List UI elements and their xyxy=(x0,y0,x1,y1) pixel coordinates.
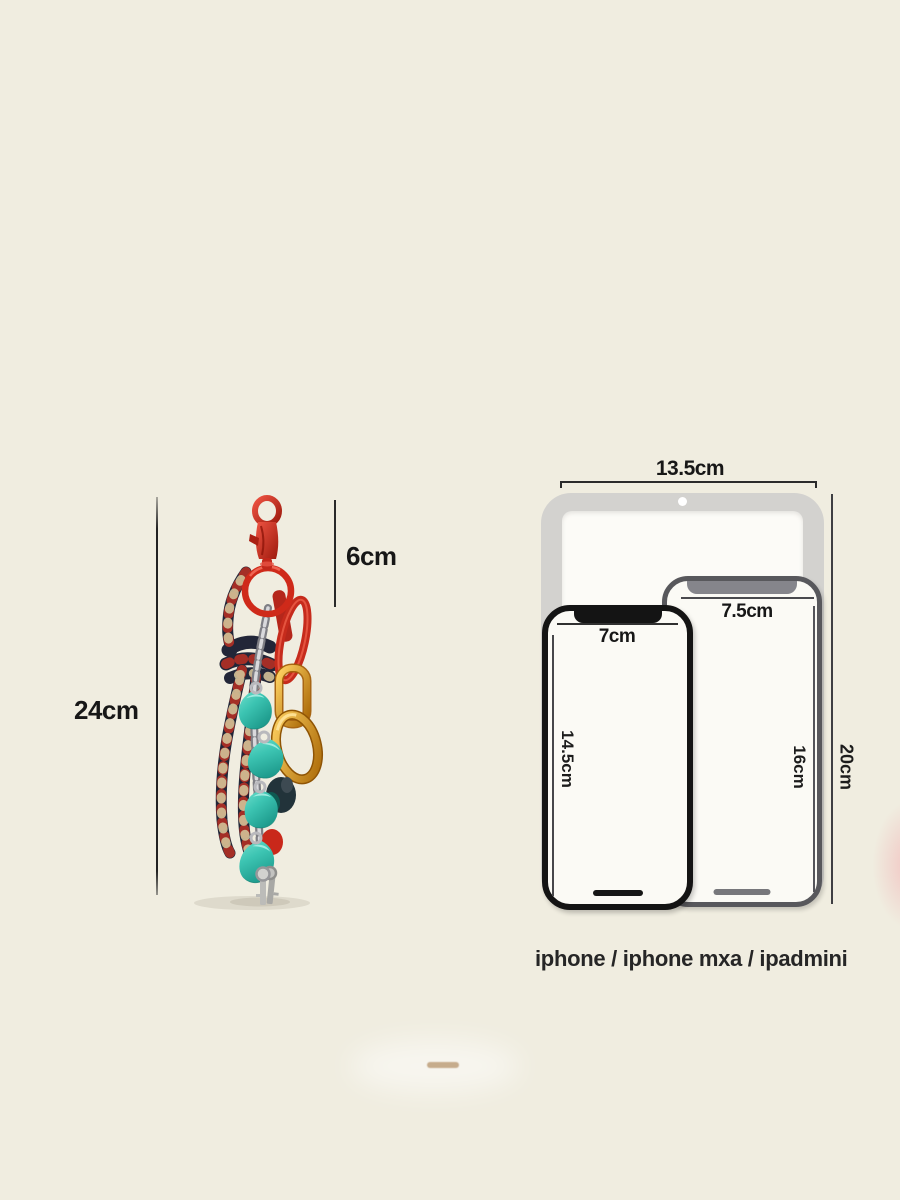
iphone-mxa-home-indicator xyxy=(714,889,771,895)
iphone-height-line xyxy=(552,635,554,896)
iphone-mxa-height-line xyxy=(813,606,815,892)
iphone-mxa-height-label: 16cm xyxy=(789,745,809,788)
iphone-mxa-width-label: 7.5cm xyxy=(721,601,772,623)
ipad-width-label: 13.5cm xyxy=(656,457,724,481)
product-size-diagram: 24cm 6cm xyxy=(0,0,900,1200)
height-dimension-label-24cm: 24cm xyxy=(74,695,139,726)
camera-dot-icon xyxy=(678,497,687,506)
device-comparison-caption: iphone / iphone mxa / ipadmini xyxy=(535,946,847,972)
iphone-height-label: 14.5cm xyxy=(557,730,577,788)
lobster-clasp xyxy=(249,498,279,570)
iphone-mxa-notch-icon xyxy=(687,581,797,594)
iphone-mxa-width-line xyxy=(681,597,814,599)
ipad-width-line xyxy=(560,481,817,483)
ipad-height-label: 20cm xyxy=(836,744,857,790)
iphone-notch-icon xyxy=(574,611,662,623)
pink-edge-artifact xyxy=(872,800,900,930)
ipad-height-line xyxy=(831,494,833,904)
iphone-width-label: 7cm xyxy=(599,626,636,648)
small-smudge-artifact xyxy=(427,1062,459,1068)
keychain-charm-photo xyxy=(150,480,400,930)
iphone-width-line xyxy=(557,623,678,625)
iphone-home-indicator xyxy=(593,890,643,896)
